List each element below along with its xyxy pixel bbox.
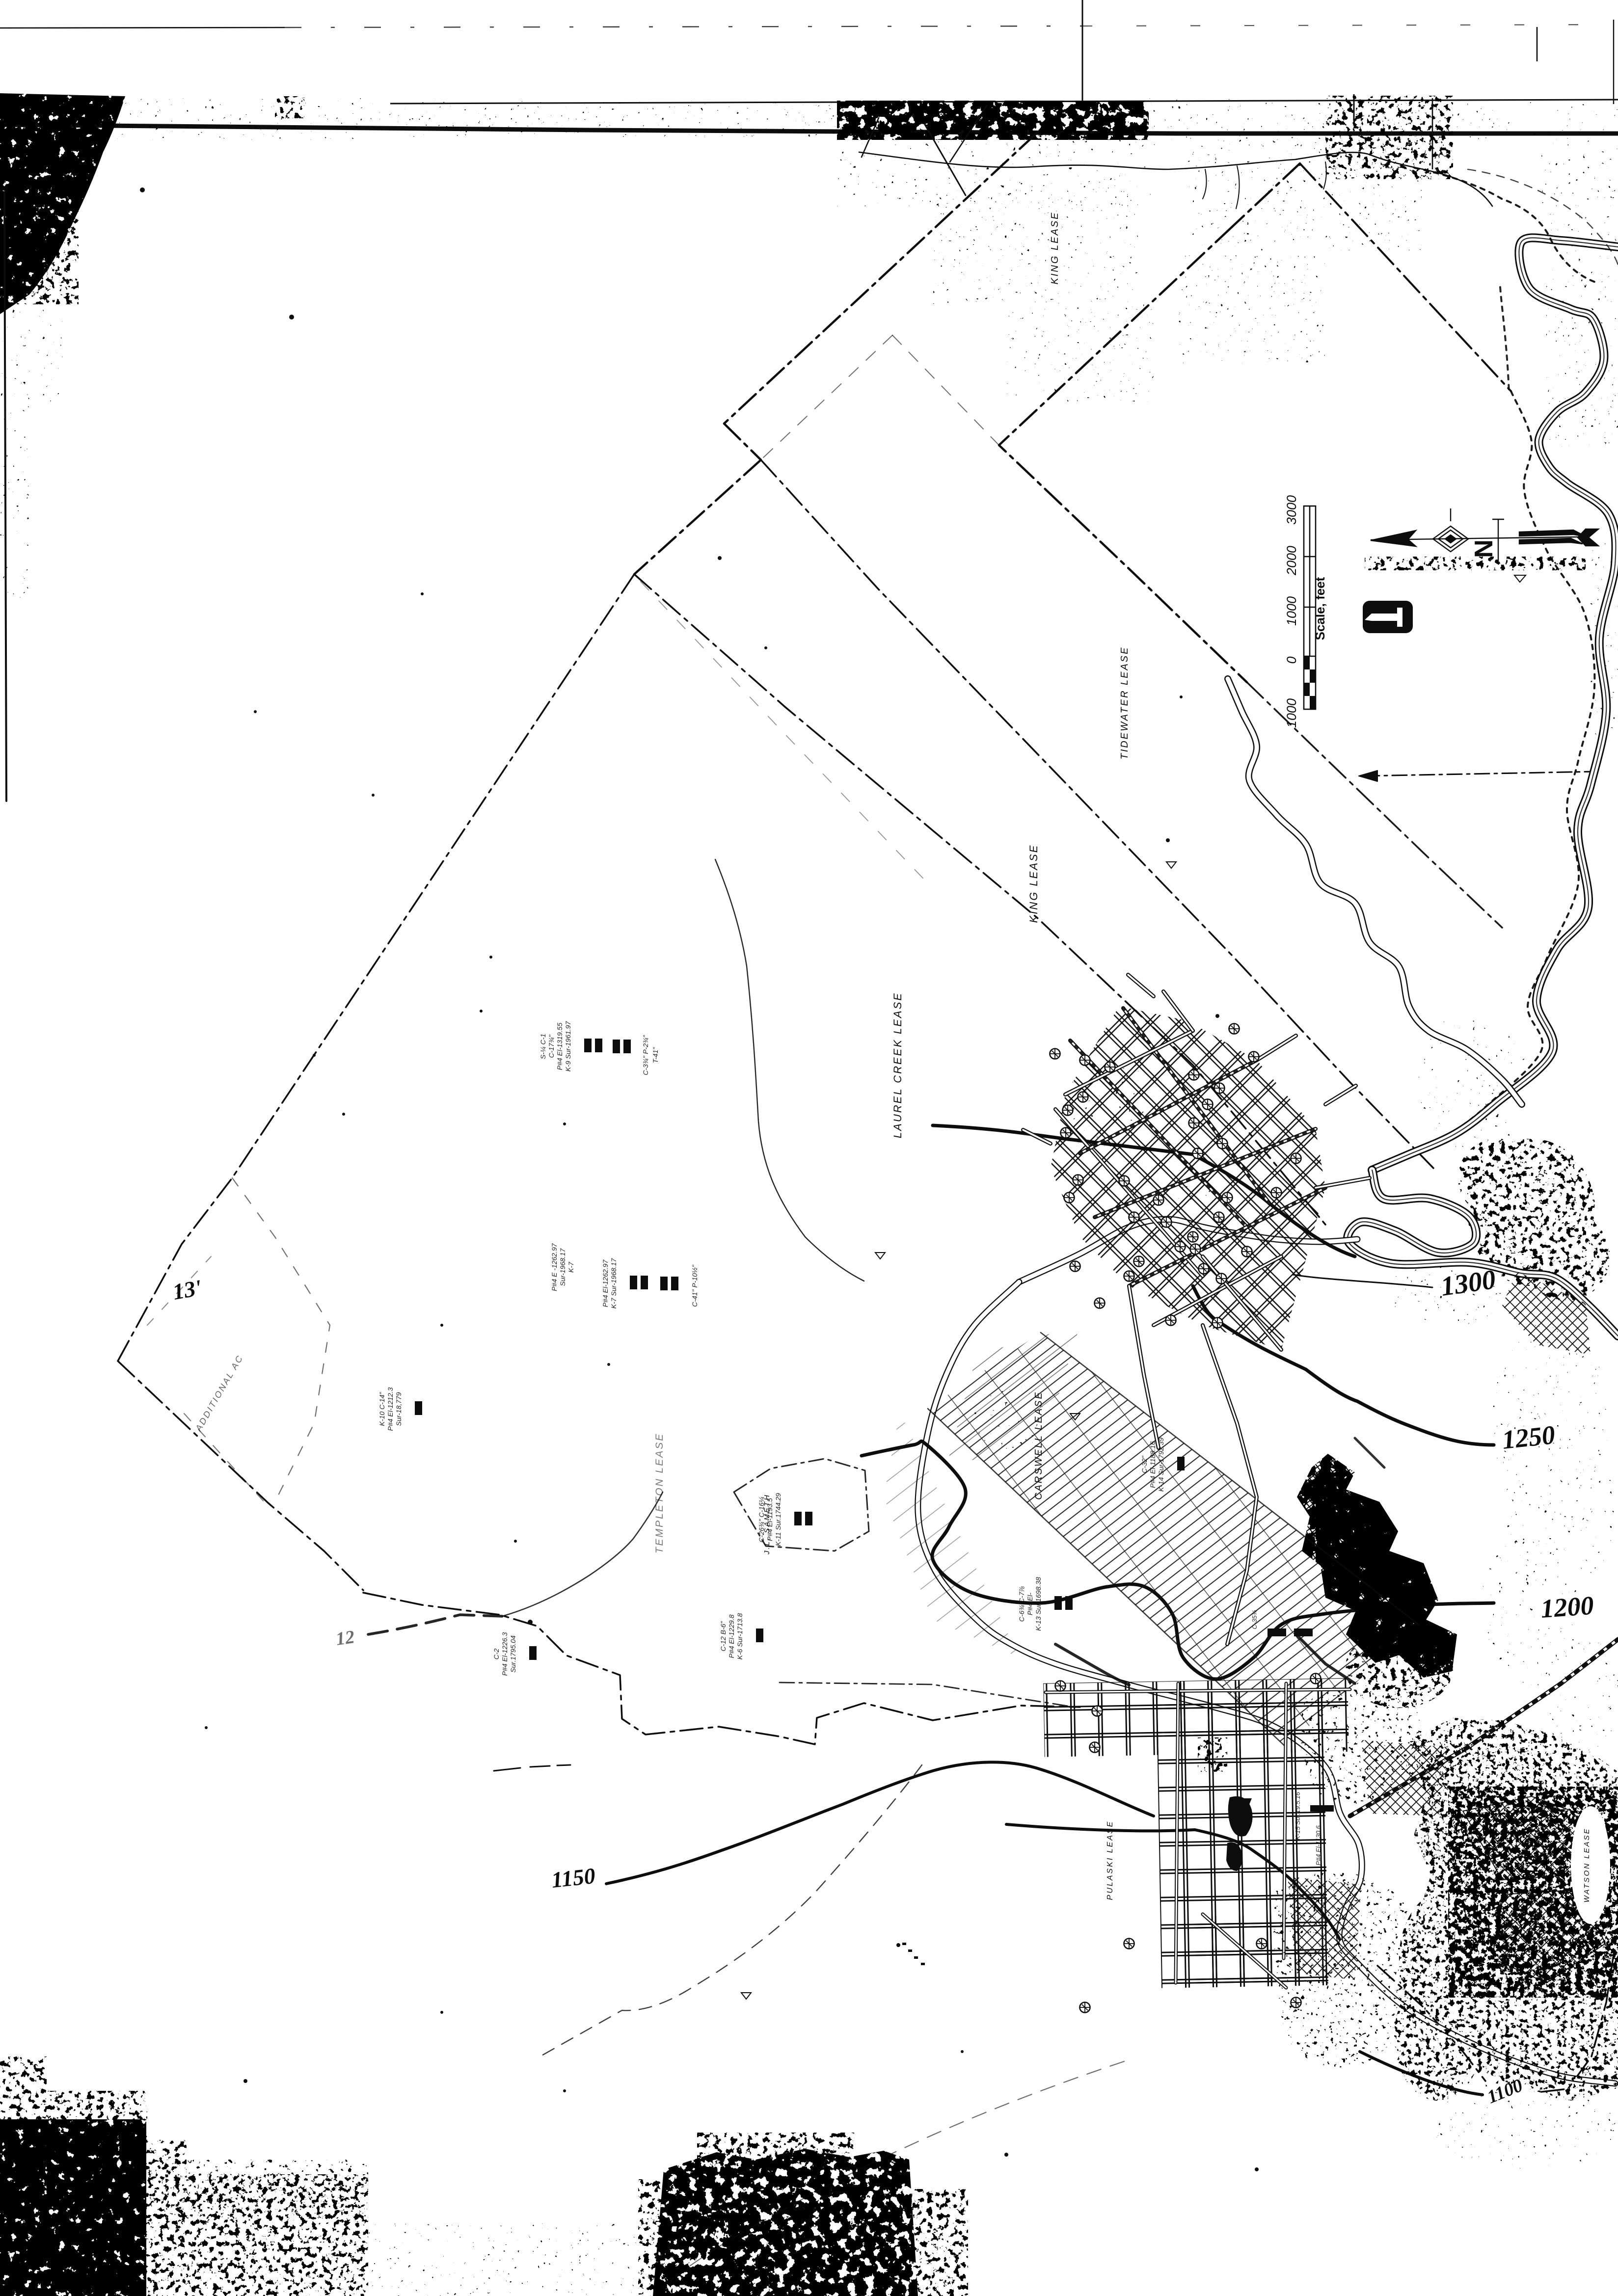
svg-text:K-10 C-14": K-10 C-14" (378, 1392, 386, 1426)
svg-text:P#4 El-1262.97: P#4 El-1262.97 (601, 1259, 609, 1308)
svg-text:P#4 E -1262.97: P#4 E -1262.97 (550, 1243, 558, 1291)
svg-text:CARSWELL LEASE: CARSWELL LEASE (1033, 1391, 1044, 1500)
svg-text:P#4 El-1229.8: P#4 El-1229.8 (728, 1614, 735, 1658)
svg-text:C-41" P-10½": C-41" P-10½" (691, 1264, 699, 1307)
svg-text:1200: 1200 (1540, 1591, 1595, 1624)
svg-text:C-6¾ C-7⅞: C-6¾ C-7⅞ (1018, 1586, 1025, 1622)
svg-text:LAUREL CREEK LEASE: LAUREL CREEK LEASE (891, 992, 904, 1138)
svg-text:C-26¾" C-16¼: C-26¾" C-16¼ (757, 1496, 765, 1542)
svg-text:K-7 Sur-1968.17: K-7 Sur-1968.17 (610, 1258, 618, 1309)
svg-text:C-3¾" P-2¾": C-3¾" P-2¾" (642, 1035, 649, 1075)
svg-text:Sur-1968.17: Sur-1968.17 (559, 1248, 566, 1286)
svg-text:1250: 1250 (1501, 1420, 1557, 1455)
svg-text:P#4 El-1193.5: P#4 El-1193.5 (766, 1498, 774, 1541)
svg-text:P#4 El-1188.16: P#4 El-1188.16 (1149, 1441, 1157, 1488)
svg-text:P#4 El-1130.6: P#4 El-1130.6 (1315, 1825, 1322, 1866)
svg-text:TEMPLETON LEASE: TEMPLETON LEASE (654, 1433, 665, 1554)
svg-text:13': 13' (171, 1275, 204, 1304)
svg-text:1000: 1000 (1284, 596, 1299, 626)
svg-text:2000: 2000 (1284, 546, 1299, 576)
svg-text:P#4 El-: P#4 El- (1026, 1593, 1034, 1615)
svg-text:P#4 El-1226.3: P#4 El-1226.3 (501, 1632, 509, 1676)
svg-text:K-11 Sur.1744.29: K-11 Sur.1744.29 (774, 1493, 782, 1546)
svg-text:3000: 3000 (1284, 495, 1299, 525)
svg-text:WATSON LEASE: WATSON LEASE (1583, 1828, 1591, 1903)
svg-text:12: 12 (334, 1627, 355, 1650)
svg-text:0: 0 (1284, 656, 1299, 664)
svg-text:KING LEASE: KING LEASE (1050, 212, 1060, 285)
svg-text:N: N (1470, 539, 1498, 558)
svg-text:1150: 1150 (550, 1863, 596, 1893)
svg-text:S-¼ C-1: S-¼ C-1 (539, 1034, 547, 1059)
svg-text:K-9 Sur-1961.97: K-9 Sur-1961.97 (564, 1021, 572, 1072)
svg-text:Sur.1795.04: Sur.1795.04 (509, 1635, 517, 1673)
svg-text:K-13 Sur 1698.38: K-13 Sur 1698.38 (1034, 1577, 1042, 1631)
svg-text:1000: 1000 (1284, 698, 1299, 728)
svg-text:K-15 Sur.19.5.16: K-15 Sur.19.5.16 (1294, 1791, 1301, 1840)
svg-text:T-41": T-41" (651, 1047, 659, 1064)
svg-text:K-14 Sur-1792.39: K-14 Sur-1792.39 (1157, 1438, 1165, 1492)
svg-text:Scale, feet: Scale, feet (1313, 577, 1327, 640)
svg-text:P#4 El-1212.3: P#4 El-1212.3 (386, 1387, 394, 1431)
svg-text:K-7: K-7 (567, 1261, 575, 1273)
svg-text:KING LEASE: KING LEASE (1027, 844, 1040, 923)
svg-text:PULASKI LEASE: PULASKI LEASE (1106, 1820, 1114, 1900)
svg-text:C-2: C-2 (492, 1649, 500, 1660)
svg-text:TIDEWATER LEASE: TIDEWATER LEASE (1119, 646, 1130, 760)
svg-text:Sur-18,779: Sur-18,779 (395, 1392, 403, 1426)
svg-text:C-17¾": C-17¾" (547, 1034, 555, 1058)
svg-text:C-35¾: C-35¾ (1251, 1610, 1258, 1629)
svg-text:C-32": C-32" (1140, 1455, 1148, 1473)
svg-text:K-6 Sur-1713.8: K-6 Sur-1713.8 (736, 1613, 744, 1659)
svg-text:P#4 El-1319.55: P#4 El-1319.55 (556, 1023, 564, 1070)
svg-text:C-12 B-6": C-12 B-6" (719, 1621, 727, 1651)
